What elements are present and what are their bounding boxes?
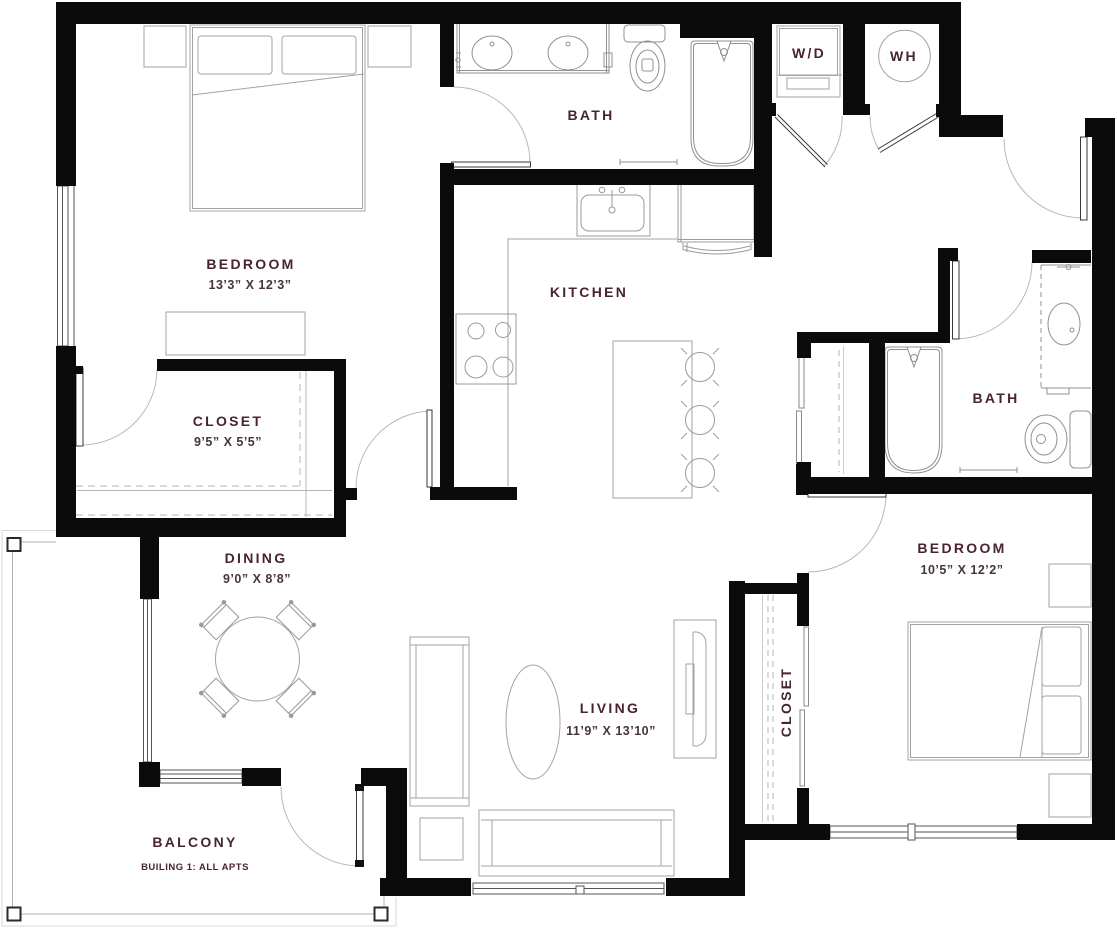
svg-text:DINING: DINING [225, 550, 288, 566]
svg-text:11’9” X 13’10”: 11’9” X 13’10” [566, 724, 656, 738]
svg-text:9’0” X 8’8”: 9’0” X 8’8” [223, 572, 291, 586]
svg-text:BEDROOM: BEDROOM [206, 256, 295, 272]
svg-text:BATH: BATH [567, 107, 614, 123]
svg-text:CLOSET: CLOSET [193, 413, 264, 429]
svg-text:LIVING: LIVING [580, 700, 640, 716]
svg-text:BATH: BATH [972, 390, 1019, 406]
svg-text:CLOSET: CLOSET [778, 667, 794, 738]
svg-text:10’5” X 12’2”: 10’5” X 12’2” [921, 563, 1004, 577]
svg-text:W/D: W/D [792, 45, 826, 61]
svg-text:9’5” X 5’5”: 9’5” X 5’5” [194, 435, 262, 449]
svg-text:BALCONY: BALCONY [152, 834, 237, 850]
svg-text:BUILING 1: ALL APTS: BUILING 1: ALL APTS [141, 862, 249, 873]
svg-text:BEDROOM: BEDROOM [917, 540, 1006, 556]
svg-text:WH: WH [890, 48, 918, 64]
svg-text:KITCHEN: KITCHEN [550, 284, 628, 300]
svg-text:13’3” X 12’3”: 13’3” X 12’3” [209, 278, 292, 292]
